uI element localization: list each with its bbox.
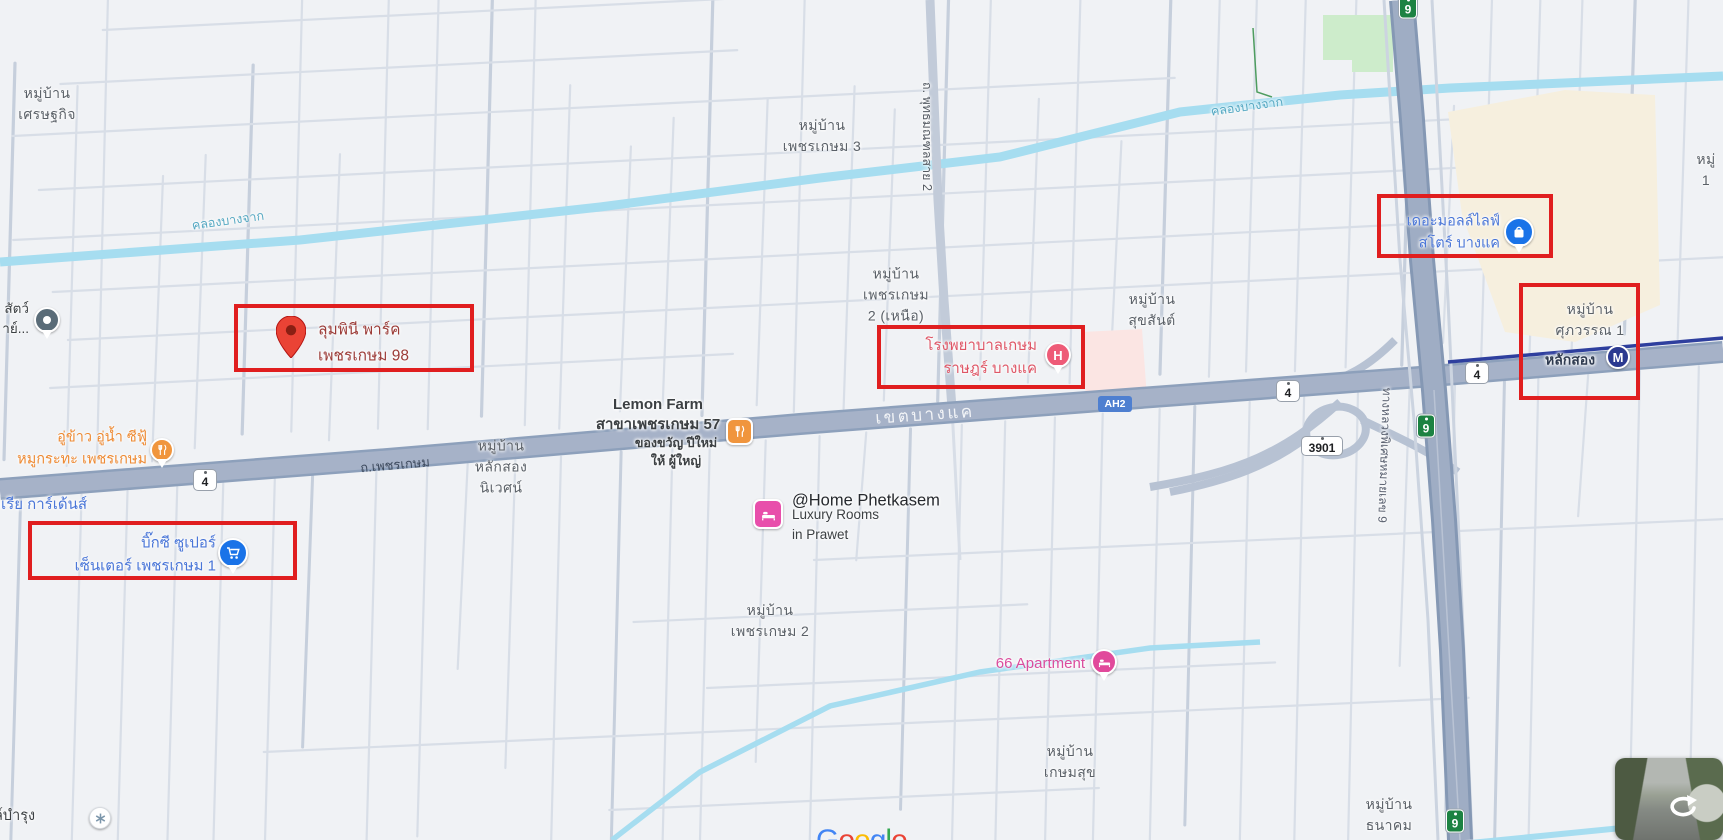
at-home-lodging-icon[interactable] [753,499,783,529]
locality-label-kasemsuk: หมู่บ้าน เกษมสุข [1044,741,1096,783]
poi-sublabel-at-home: Luxury Rooms in Prawet [792,505,879,546]
route-shield-4: 4 [193,469,217,491]
map-base-layer [0,0,1723,840]
locality-label-sethakit: หมู่บ้าน เศรษฐกิจ [18,83,76,125]
google-logo[interactable]: Google [816,824,907,840]
asterisk-icon [95,813,106,824]
park-area [1323,15,1393,72]
poi-label-gardens-truncated[interactable]: อเรีย การ์เด้นส์ [0,494,87,517]
locality-label-phetkasem3: หมู่บ้าน เพชรเกษม 3 [783,115,861,157]
poi-dot-icon [43,316,51,324]
lodging-pin[interactable] [1091,649,1117,675]
poi-sublabel-lemon-farm: ของขวัญ ปีใหม่ ให้ ผู้ใหญ่ [635,434,717,470]
poi-label-bamrung-truncated[interactable]: ล์บำรุง [0,806,35,828]
map-canvas[interactable]: คลองบางจาก คลองบางจาก เขตบางแค ถ.เพชรเกษ… [0,0,1723,840]
route-shield-9: 9 [1417,415,1435,438]
annotation-box-the-mall [1377,194,1553,258]
restaurant-pin[interactable] [150,438,174,462]
route-shield-ah2: AH2 [1098,396,1132,412]
poi-label-apartment66[interactable]: 66 Apartment [996,653,1085,676]
restaurant-icon [156,444,168,456]
route-shield-9: 9 [1399,0,1417,19]
road-label-phutthamonthon: ถ. พุทธมณฑลสาย 2 [917,82,936,191]
route-shield-9: 9 [1446,810,1464,833]
canal-south [612,642,1260,840]
annotation-box-hospital [877,325,1085,389]
lemon-farm-restaurant-icon[interactable] [726,418,753,445]
locality-label-phetkasem2-nuea: หมู่บ้าน เพชรเกษม 2 (เหนือ) [863,264,929,327]
street-view-thumbnail[interactable] [1615,758,1723,840]
bed-icon [1098,656,1111,668]
locality-label-mu1: หมู่ 1 [1696,149,1715,191]
poi-label-uu-khao[interactable]: อู่ข้าว อู่น้ำ ซีฟู้ หมูกระทะ เพชรเกษม [17,427,147,471]
services-poi-icon[interactable] [89,807,111,829]
annotation-box-supawan-laksong [1519,283,1640,400]
bed-icon [761,508,776,521]
route-shield-4: 4 [1276,380,1300,402]
locality-label-thanakhom: หมู่บ้าน ธนาคม [1366,794,1413,836]
annotation-box-lumpini [234,304,474,372]
locality-label-phetkasem2: หมู่บ้าน เพชรเกษม 2 [731,600,809,642]
generic-poi-pin[interactable] [34,307,60,333]
route-shield-3901: 3901 [1301,436,1343,456]
route-shield-4: 4 [1465,362,1489,384]
locality-label-laksong-nives: หมู่บ้าน หลักสอง นิเวศน์ [475,436,527,499]
locality-label-suksan: หมู่บ้าน สุขสันต์ [1128,289,1175,331]
street-view-arrow-icon [1661,794,1699,820]
poi-label-lemon-farm[interactable]: Lemon Farm สาขาเพชรเกษม 57 [596,395,720,436]
annotation-box-big-c [28,521,297,580]
poi-label-animal-truncated[interactable]: สัตว์ าย์... [2,299,29,340]
